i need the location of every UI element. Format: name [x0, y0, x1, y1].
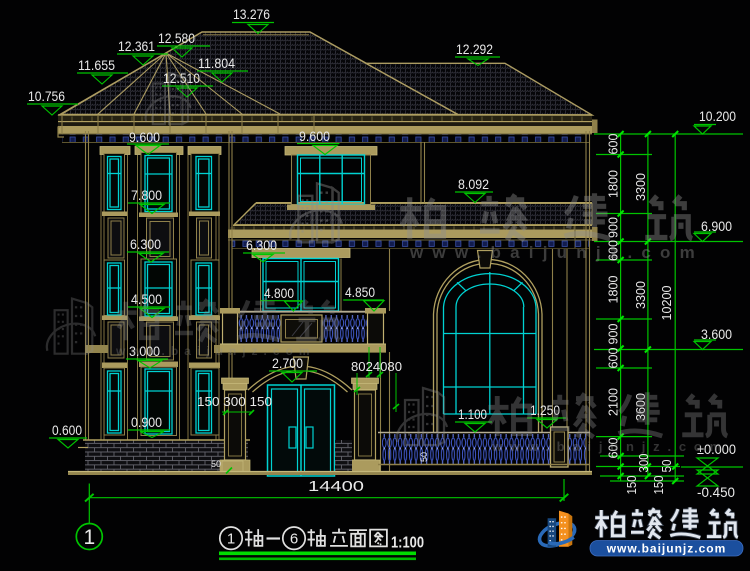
svg-text:1800: 1800 [606, 276, 621, 304]
svg-text:6.300: 6.300 [246, 237, 277, 253]
svg-text:6: 6 [290, 531, 298, 548]
svg-text:50: 50 [659, 460, 674, 473]
svg-text:12.292: 12.292 [456, 41, 493, 57]
svg-text:0.900: 0.900 [131, 414, 162, 430]
svg-text:600: 600 [606, 134, 621, 155]
svg-text:150: 150 [651, 476, 666, 495]
svg-text:6.900: 6.900 [701, 218, 732, 234]
svg-text:600: 600 [606, 348, 621, 369]
svg-text:www.baijunjz.com: www.baijunjz.com [606, 542, 727, 556]
svg-text:900: 900 [606, 324, 621, 345]
svg-text:300: 300 [636, 454, 651, 473]
svg-text:www.baijunjz.com: www.baijunjz.com [409, 243, 704, 262]
svg-text:10.756: 10.756 [28, 88, 65, 104]
svg-text:10.200: 10.200 [699, 108, 736, 124]
svg-text:1: 1 [83, 526, 95, 549]
svg-text:1800: 1800 [606, 170, 621, 198]
svg-text:9.600: 9.600 [299, 128, 330, 144]
svg-text:11.804: 11.804 [198, 55, 235, 71]
svg-text:13.276: 13.276 [233, 6, 270, 22]
svg-text:4.850: 4.850 [345, 284, 375, 300]
svg-text:2100: 2100 [606, 388, 621, 416]
svg-text:www.baijunjz.com: www.baijunjz.com [115, 344, 316, 358]
svg-text:1:100: 1:100 [391, 535, 424, 552]
svg-text:11.655: 11.655 [78, 57, 115, 73]
svg-text:3300: 3300 [633, 173, 648, 201]
svg-text:6.300: 6.300 [130, 236, 161, 252]
svg-text:9.600: 9.600 [129, 129, 160, 145]
svg-text:900: 900 [606, 217, 621, 238]
svg-text:150 300 150: 150 300 150 [197, 394, 272, 409]
svg-text:50: 50 [211, 459, 221, 469]
svg-text:12.361: 12.361 [118, 38, 155, 54]
svg-text:4.800: 4.800 [264, 285, 294, 301]
svg-text:1: 1 [227, 531, 235, 548]
svg-text:3.600: 3.600 [701, 326, 732, 342]
svg-text:www.baijunjz.com: www.baijunjz.com [491, 439, 729, 454]
svg-text:1.100: 1.100 [458, 406, 487, 422]
svg-text:-0.450: -0.450 [697, 484, 735, 500]
svg-text:14400: 14400 [308, 478, 364, 495]
svg-text:12.580: 12.580 [158, 30, 195, 46]
svg-text:10200: 10200 [659, 286, 674, 321]
svg-text:8024080: 8024080 [351, 360, 402, 374]
svg-text:3300: 3300 [633, 281, 648, 309]
svg-text:7.800: 7.800 [131, 187, 162, 203]
svg-text:150: 150 [624, 476, 639, 495]
svg-text:0.600: 0.600 [52, 422, 82, 438]
svg-text:8.092: 8.092 [458, 176, 489, 192]
svg-text:50: 50 [419, 452, 429, 462]
